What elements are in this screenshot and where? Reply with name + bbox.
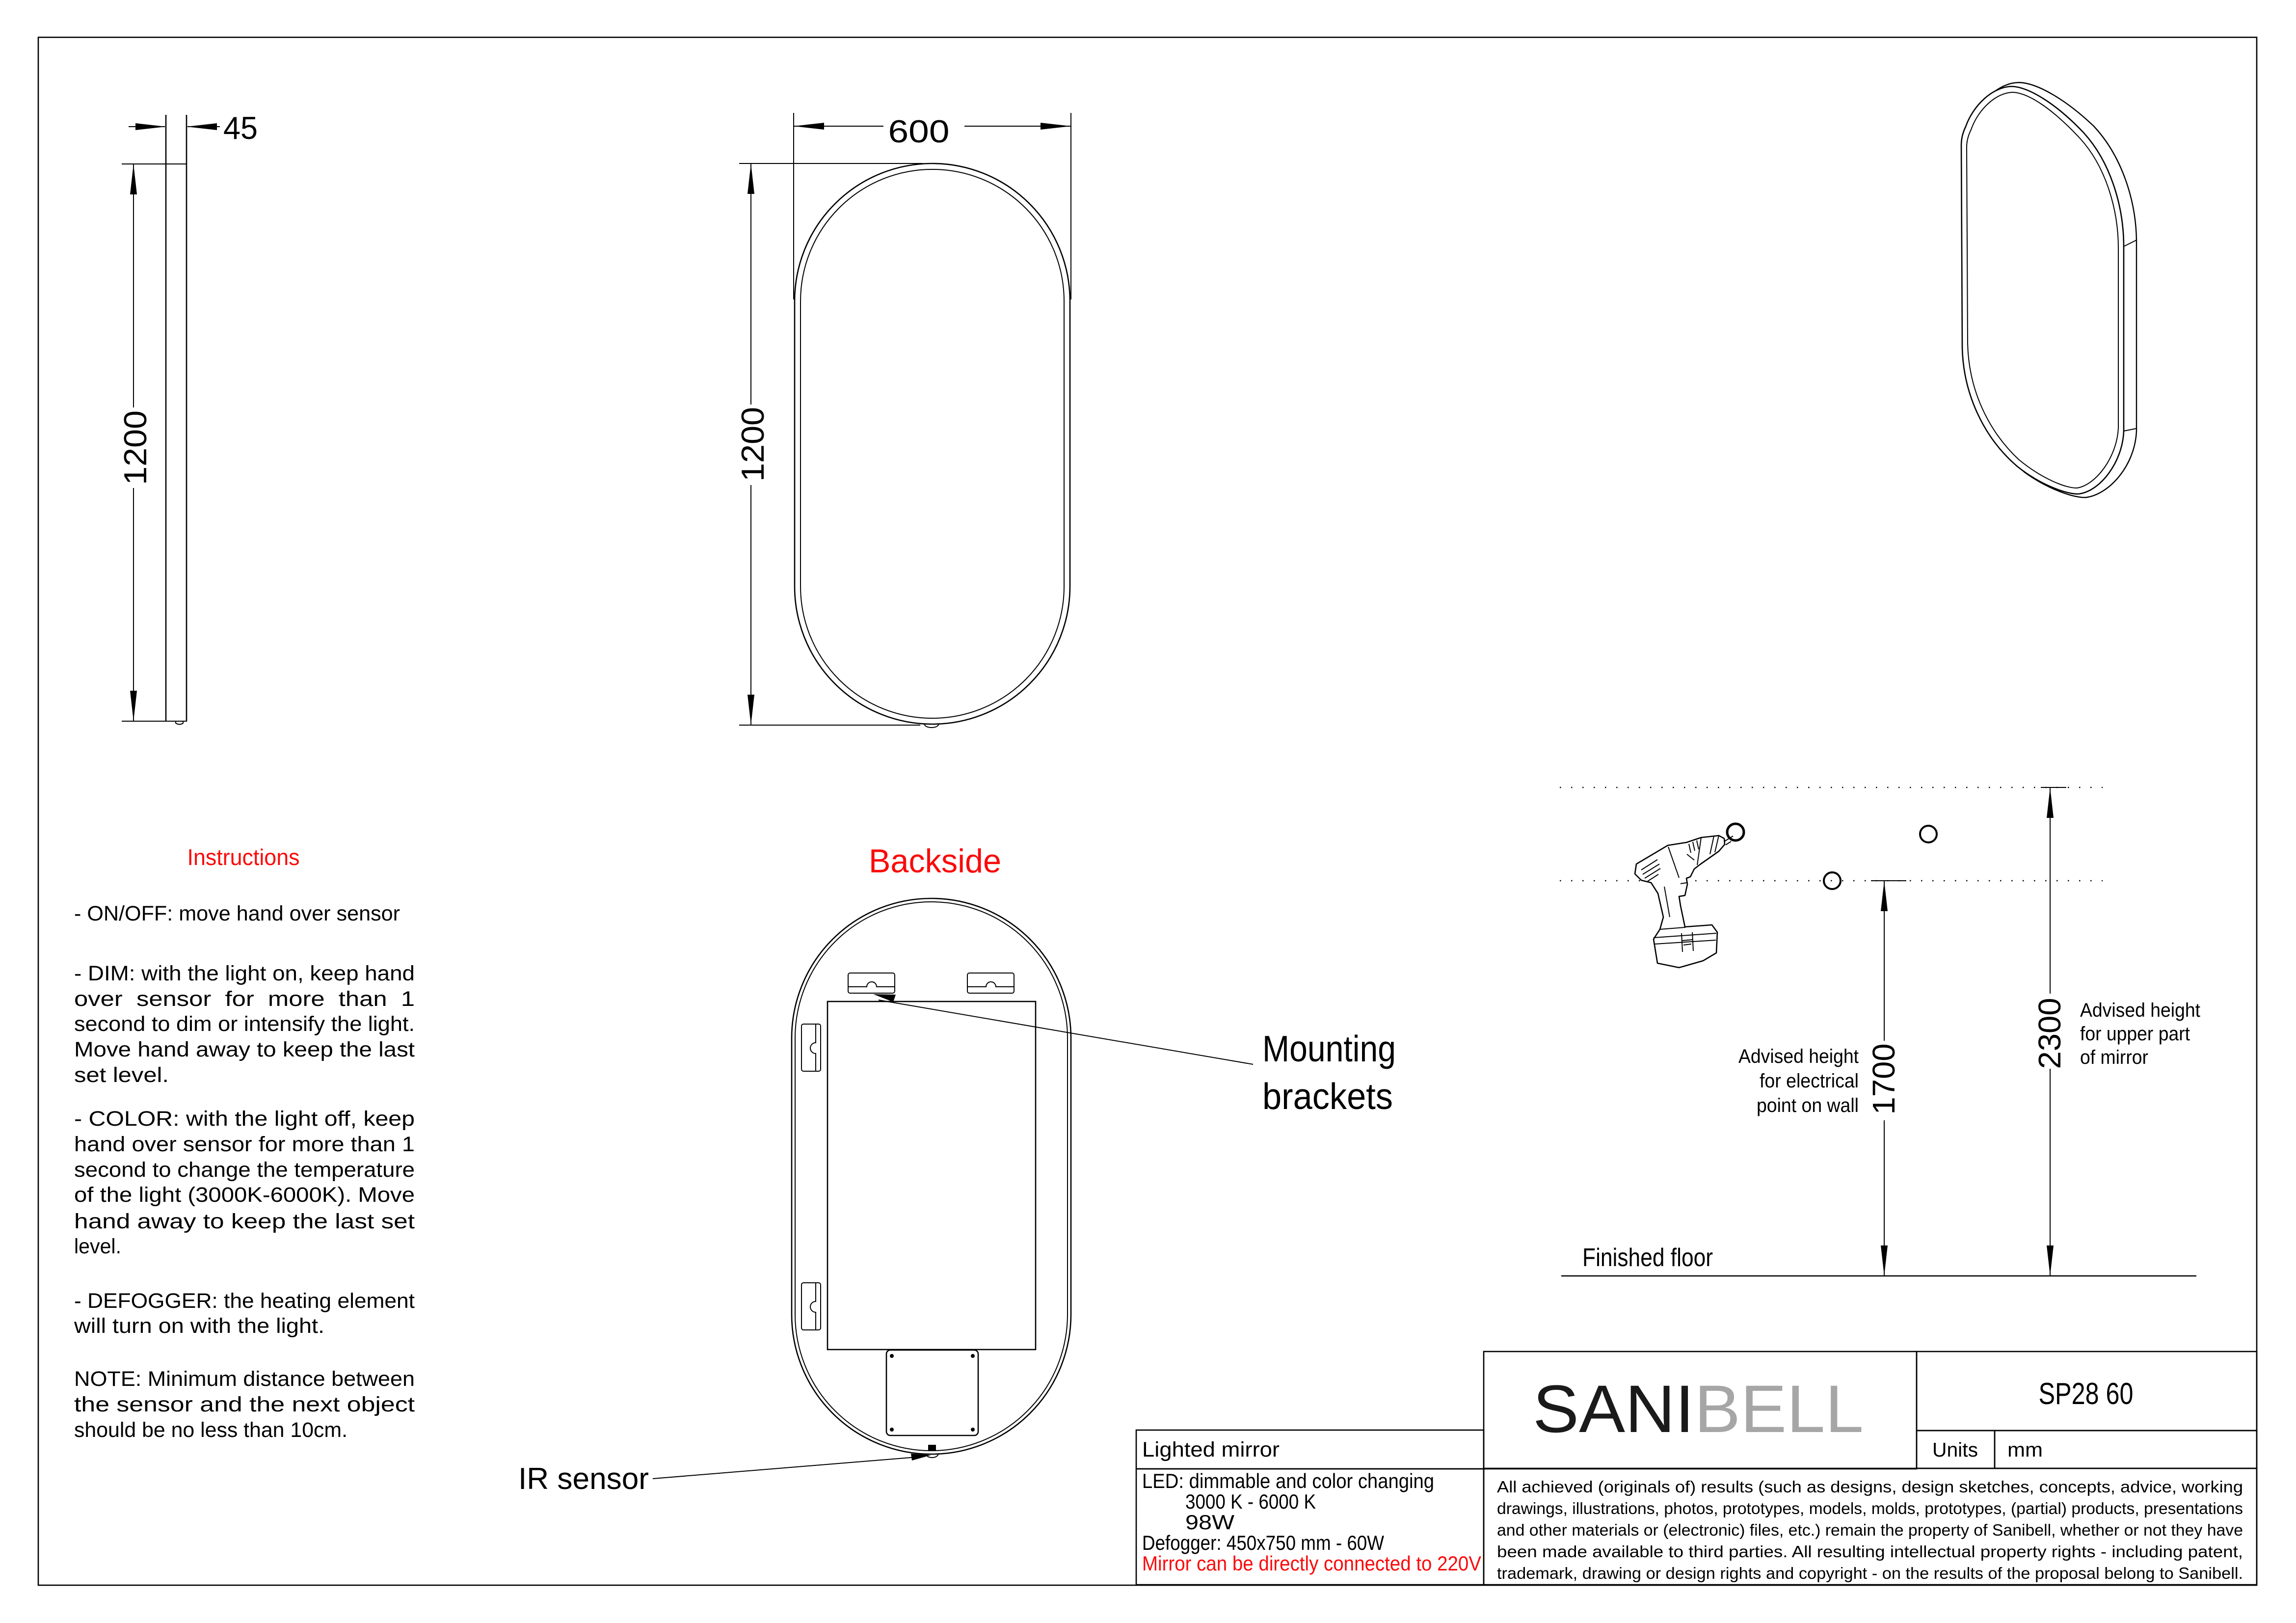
svg-text:Advised height: Advised height [2080,1000,2200,1021]
svg-text:set level.: set level. [74,1063,169,1087]
svg-text:second to dim or intensify the: second to dim or intensify the light. [74,1012,415,1036]
svg-text:drawings, illustrations, photo: drawings, illustrations, photos, prototy… [1497,1499,2243,1517]
svg-text:Mirror can be directly connect: Mirror can be directly connected to 220V [1142,1552,1481,1575]
svg-text:of the light (3000K-6000K). Mo: of the light (3000K-6000K). Move [74,1183,415,1207]
svg-text:All achieved (originals of) re: All achieved (originals of) results (suc… [1497,1478,2243,1496]
svg-text:Advised height: Advised height [1738,1046,1859,1067]
svg-text:been made available to third p: been made available to third parties. Al… [1497,1542,2243,1561]
svg-text:1200: 1200 [117,410,153,485]
svg-text:hand away to keep the last set: hand away to keep the last set [74,1210,415,1233]
svg-text:hand over sensor for more than: hand over sensor for more than 1 [74,1133,415,1156]
svg-text:Backside: Backside [869,842,1001,880]
svg-text:1700: 1700 [1866,1044,1901,1115]
svg-text:98W: 98W [1185,1511,1234,1534]
svg-text:the sensor and the next object: the sensor and the next object [74,1393,415,1416]
svg-text:- COLOR: with the light off, k: - COLOR: with the light off, keep [74,1107,415,1131]
svg-text:- ON/OFF: move hand over senso: - ON/OFF: move hand over sensor [74,902,400,925]
svg-text:level.: level. [74,1235,121,1258]
svg-text:IR sensor: IR sensor [518,1462,649,1496]
svg-text:will turn on with the light.: will turn on with the light. [74,1314,324,1338]
svg-text:45: 45 [223,110,258,146]
svg-text:SP28 60: SP28 60 [2039,1377,2134,1411]
svg-text:of mirror: of mirror [2080,1047,2148,1068]
svg-text:second to change the temperatu: second to change the temperature [74,1158,415,1182]
svg-text:Mounting: Mounting [1262,1028,1396,1069]
svg-text:Units: Units [1932,1438,1978,1461]
svg-text:over sensor for more than: over sensor for more than 1 [74,987,415,1011]
svg-text:should be no less than 10cm.: should be no less than 10cm. [74,1418,347,1442]
svg-text:mm: mm [2007,1438,2043,1461]
svg-text:Instructions: Instructions [187,844,300,870]
svg-text:Move hand away to keep the las: Move hand away to keep the last [74,1038,415,1061]
svg-text:- DEFOGGER: the heating elemen: - DEFOGGER: the heating element [74,1289,415,1313]
svg-text:point on wall: point on wall [1757,1095,1859,1116]
svg-text:Finished floor: Finished floor [1582,1244,1713,1272]
svg-text:2300: 2300 [2032,998,2067,1069]
svg-text:Lighted mirror: Lighted mirror [1142,1438,1280,1461]
svg-text:for electrical: for electrical [1760,1070,1859,1092]
svg-text:brackets: brackets [1262,1076,1393,1117]
svg-text:3000 K - 6000 K: 3000 K - 6000 K [1185,1490,1316,1513]
svg-text:1200: 1200 [735,407,771,482]
svg-text:NOTE: Minimum distance between: NOTE: Minimum distance between [74,1367,415,1391]
svg-text:- DIM: with the light on, keep: - DIM: with the light on, keep hand [74,962,415,985]
svg-text:and other materials or (electr: and other materials or (electronic) file… [1497,1521,2243,1539]
svg-text:LED: dimmable and color changi: LED: dimmable and color changing [1142,1469,1434,1492]
svg-text:Defogger: 450x750 mm - 60W: Defogger: 450x750 mm - 60W [1142,1531,1384,1554]
svg-text:trademark, drawing or design r: trademark, drawing or design rights and … [1497,1564,2243,1582]
svg-text:600: 600 [888,113,950,149]
svg-text:for upper part: for upper part [2080,1023,2190,1045]
svg-text:SANIBELL: SANIBELL [1533,1372,1864,1447]
